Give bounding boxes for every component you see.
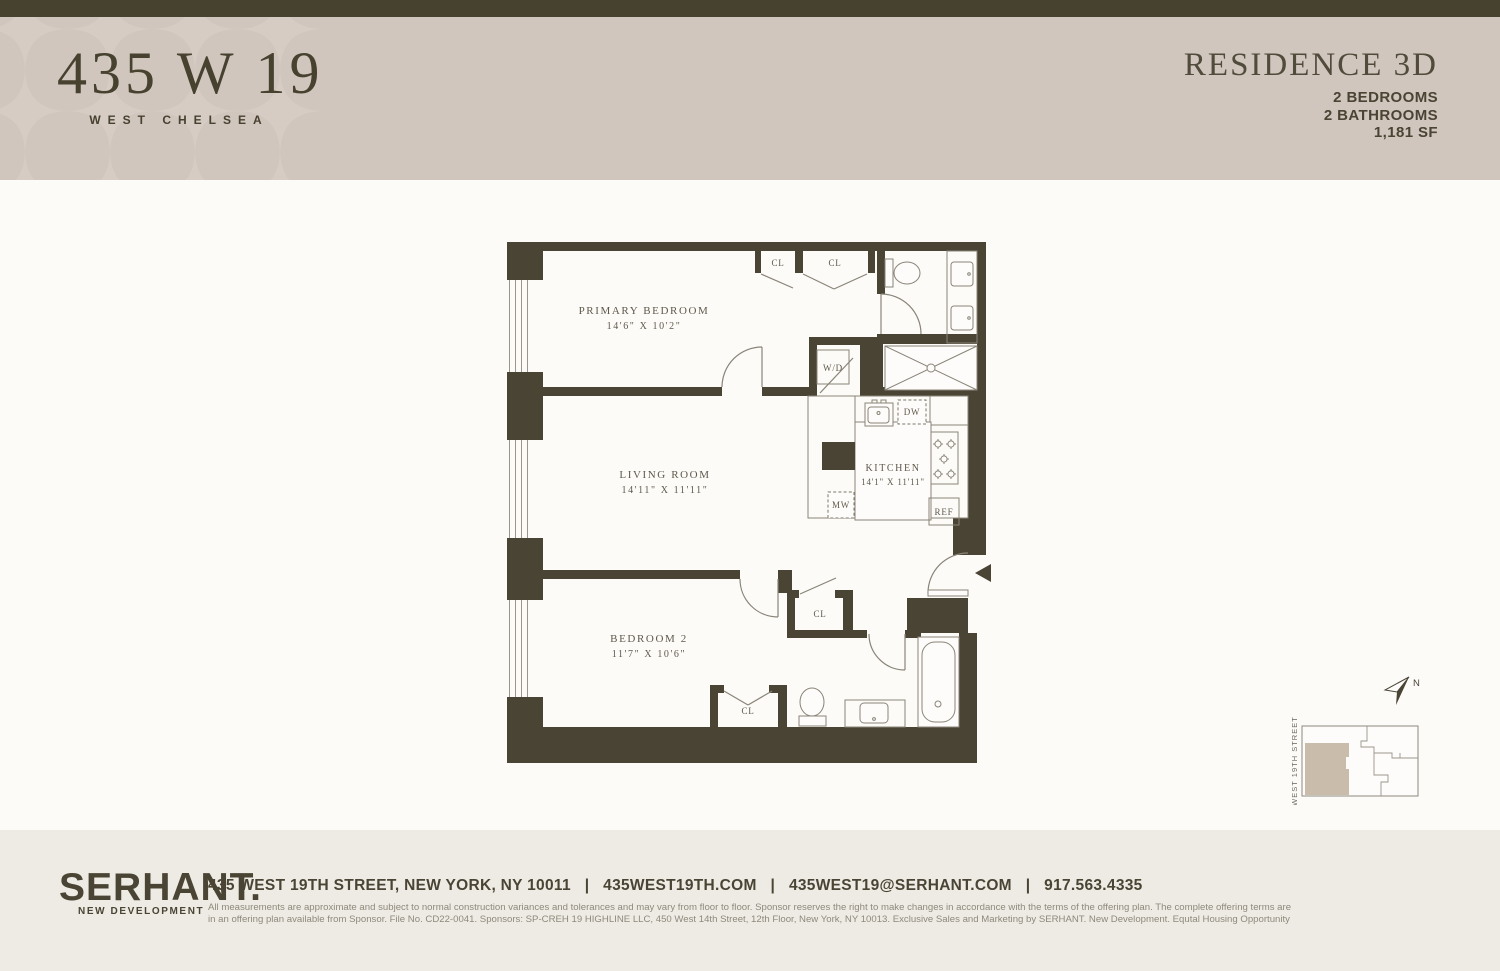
building-name: 435 W 19 (57, 41, 301, 105)
bathtub-icon (918, 637, 959, 727)
legal-disclaimer: All measurements are approximate and sub… (208, 902, 1291, 925)
window-lines (510, 280, 528, 697)
building-logo: 435 W 19 WEST CHELSEA (57, 41, 301, 127)
building-subtitle: WEST CHELSEA (57, 113, 301, 127)
svg-text:MW: MW (832, 500, 850, 510)
contact-line: 435 WEST 19TH STREET, NEW YORK, NY 10011… (208, 877, 1143, 895)
unit-highlight (1305, 743, 1349, 795)
spec-bedrooms: 2 BEDROOMS (1184, 89, 1438, 107)
bathroom-2 (799, 637, 959, 727)
room-dims-bedroom-2: 11'7" X 10'6" (612, 649, 686, 660)
double-vanity (947, 251, 977, 343)
toilet-icon (885, 259, 920, 287)
street-label: WEST 19TH STREET (1290, 716, 1299, 805)
disclaimer-line-1: All measurements are approximate and sub… (208, 902, 1291, 914)
header: 435 W 19 WEST CHELSEA RESIDENCE 3D 2 BED… (0, 17, 1500, 180)
primary-bathroom (885, 251, 977, 390)
closet-label: CL (828, 258, 841, 268)
top-accent-bar (0, 0, 1500, 17)
room-label-kitchen: KITCHEN (865, 463, 920, 474)
dishwasher: DW (898, 400, 926, 424)
entry-arrow-icon (975, 564, 991, 582)
kitchen-counter-right (930, 396, 968, 518)
residence-specs: 2 BEDROOMS 2 BATHROOMS 1,181 SF (1184, 89, 1438, 142)
range-burners-icon (931, 432, 958, 484)
building-key-map (1302, 726, 1418, 796)
serhant-sublabel: NEW DEVELOPMENT (78, 906, 204, 917)
svg-text:DW: DW (904, 407, 921, 417)
microwave: MW (828, 492, 854, 518)
room-label-bedroom-2: BEDROOM 2 (610, 633, 688, 645)
room-label-living-room: LIVING ROOM (619, 469, 710, 481)
kitchen: DW MW REF (808, 396, 968, 525)
room-label-primary-bedroom: PRIMARY BEDROOM (579, 305, 710, 317)
room-dims-living-room: 14'11" X 11'11" (622, 485, 709, 496)
vanity (845, 700, 905, 727)
north-label: N (1413, 678, 1420, 689)
closet-label: CL (771, 258, 784, 268)
residence-info: RESIDENCE 3D 2 BEDROOMS 2 BATHROOMS 1,18… (1184, 47, 1438, 142)
flyer-page: 435 W 19 WEST CHELSEA RESIDENCE 3D 2 BED… (0, 0, 1500, 971)
svg-text:REF: REF (935, 507, 954, 517)
disclaimer-line-2: in an offering plan available from Spons… (208, 914, 1291, 926)
kitchen-sink-icon (865, 400, 893, 426)
room-dims-primary-bedroom: 14'6" X 10'2" (607, 321, 682, 332)
shower (885, 346, 977, 390)
residence-title: RESIDENCE 3D (1184, 47, 1438, 83)
floor-plan: W/D DW MW (507, 242, 999, 767)
spec-bathrooms: 2 BATHROOMS (1184, 107, 1438, 125)
key-plan: N WEST 19TH STREET (1280, 665, 1425, 805)
footer: SERHANT. NEW DEVELOPMENT 435 WEST 19TH S… (0, 830, 1500, 971)
north-arrow-icon: N (1385, 677, 1420, 705)
toilet-icon (799, 688, 826, 726)
closet-label: CL (741, 706, 754, 716)
svg-text:W/D: W/D (823, 363, 843, 373)
entry-door-leaf (928, 590, 968, 596)
spec-area: 1,181 SF (1184, 124, 1438, 142)
closet-label: CL (813, 609, 826, 619)
column (822, 442, 855, 470)
room-dims-kitchen: 14'1" X 11'11" (861, 477, 925, 487)
